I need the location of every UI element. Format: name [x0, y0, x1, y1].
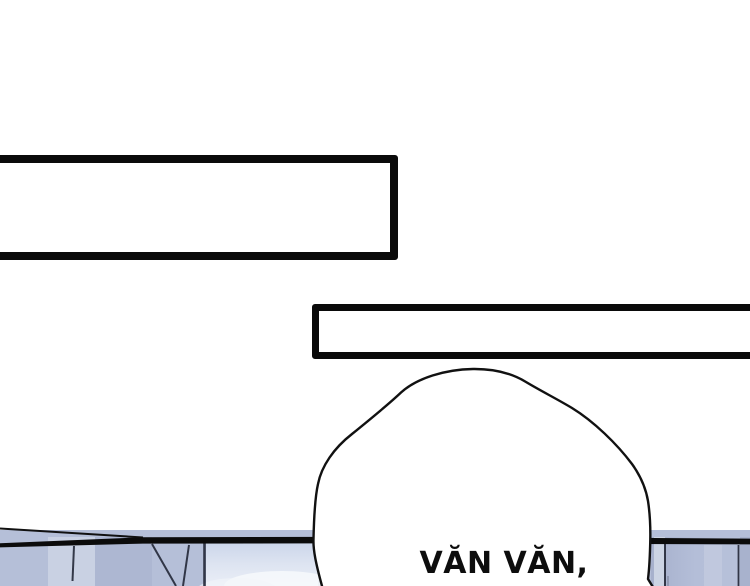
right-pane-light-strip	[654, 537, 665, 586]
panel-artwork	[0, 0, 750, 586]
comic-panel: VĂN VĂN,	[0, 0, 750, 586]
right-pane-streak	[704, 545, 722, 586]
dialogue-text: VĂN VĂN,	[414, 545, 594, 583]
